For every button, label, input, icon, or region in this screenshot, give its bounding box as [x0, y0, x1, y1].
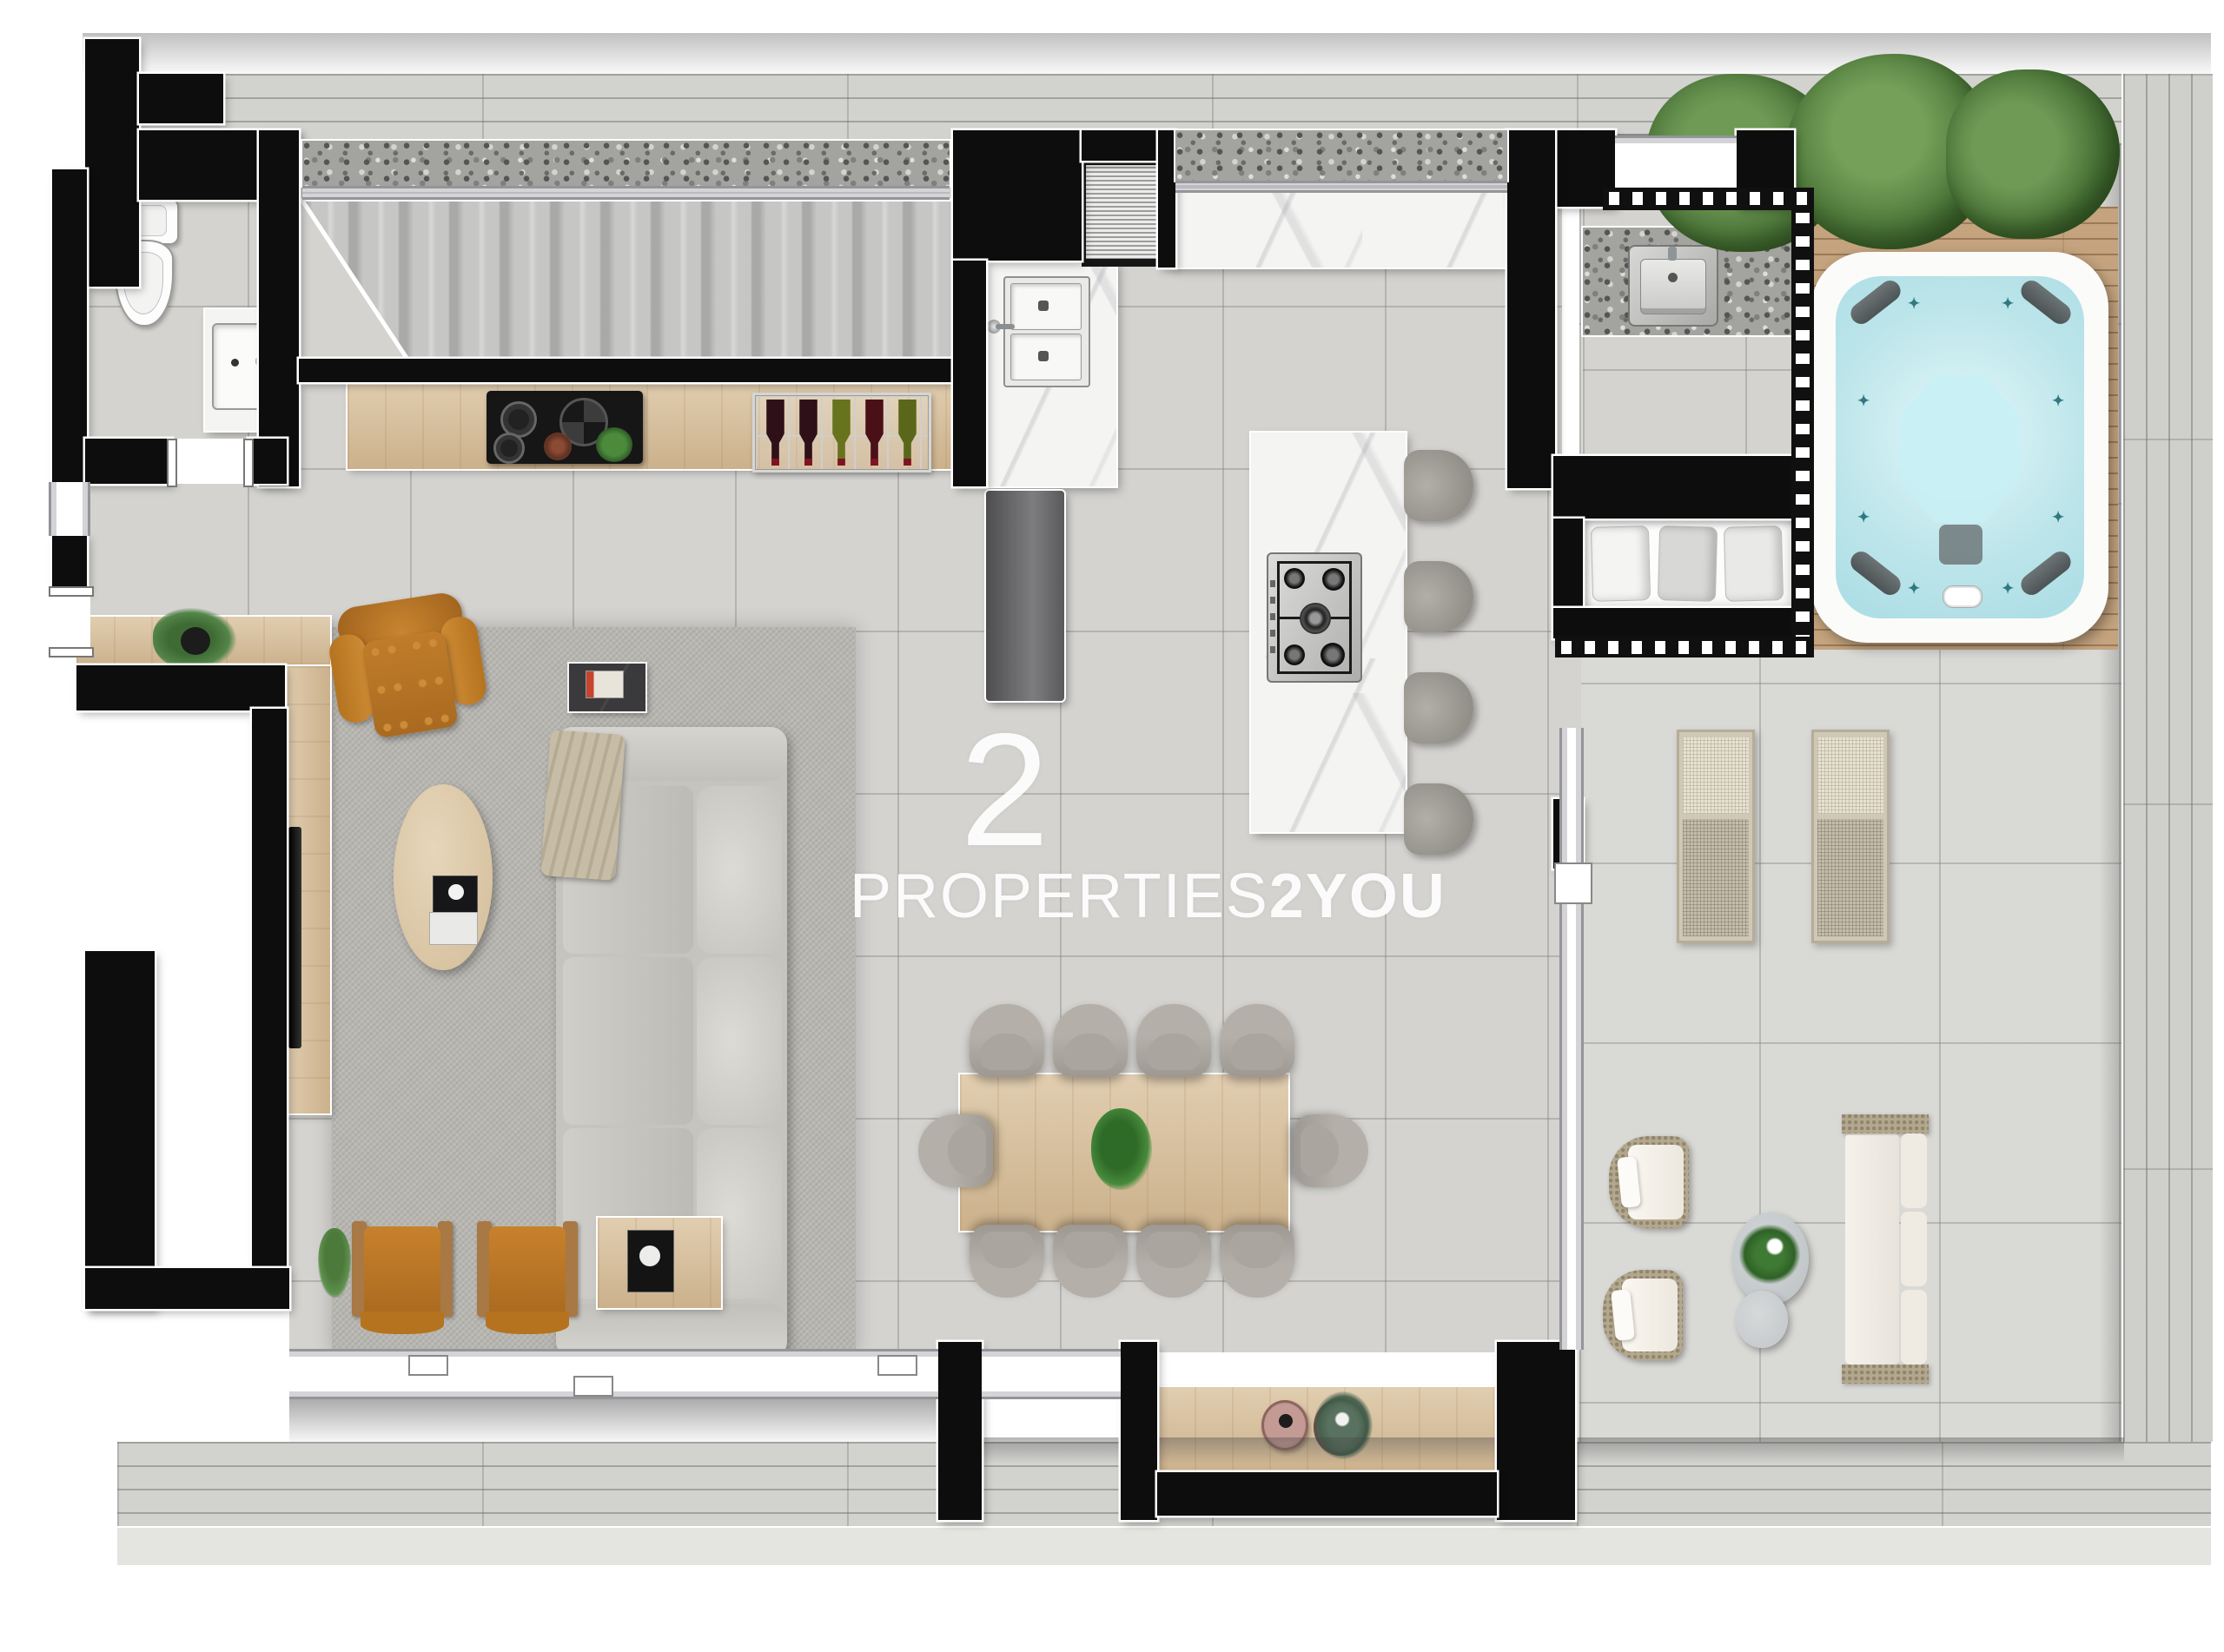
dining-chair-end	[918, 1114, 993, 1187]
hot-tub-control-panel	[1943, 585, 1982, 608]
door-mullion	[408, 1355, 448, 1376]
door-shadow	[289, 1399, 947, 1442]
watermark-brand-bold: 2YOU	[1269, 862, 1446, 931]
island-stools	[1404, 450, 1475, 895]
bottle-cap	[903, 459, 911, 466]
book-dot	[448, 884, 464, 900]
side-table-wood-book-dot	[639, 1246, 660, 1266]
burner-small	[493, 433, 525, 464]
wall	[953, 261, 986, 486]
wine-bottle	[830, 400, 853, 466]
island-gas-cooktop	[1267, 552, 1362, 683]
kitchen-faucet-spout	[996, 324, 1015, 329]
bottle-cap	[771, 459, 779, 466]
pergola-border	[1791, 207, 1814, 653]
wall	[938, 1342, 982, 1520]
wall	[299, 359, 953, 382]
vanity-basin	[212, 323, 264, 410]
tv-screen	[288, 827, 301, 1048]
cooktop-knobs	[1270, 580, 1275, 653]
jet-icon: ✦	[2052, 393, 2064, 410]
leather-armchair	[323, 589, 493, 748]
pergola-border	[1555, 637, 1814, 657]
glass-shaft	[1082, 161, 1167, 267]
counter-burner-tray	[486, 391, 643, 464]
jet-icon: ✦	[1908, 295, 1920, 313]
side-table-book	[586, 671, 624, 698]
jet-icon: ✦	[2052, 509, 2064, 526]
towel	[1591, 525, 1651, 602]
stair-cut-line	[299, 198, 408, 360]
outdoor-armchair	[1609, 1136, 1689, 1228]
wall	[52, 169, 87, 482]
burner-center	[1300, 603, 1331, 634]
wall	[248, 439, 287, 484]
kitchen-window-sill	[1175, 130, 1507, 181]
towels	[1592, 526, 1783, 599]
stairs-window-sill	[302, 141, 950, 186]
dining-chair	[1136, 1225, 1211, 1298]
kitchen-double-sink	[1003, 276, 1090, 387]
dining-chair	[1136, 1004, 1211, 1077]
wall	[85, 951, 155, 1309]
decor-plate	[544, 433, 572, 460]
burner	[1320, 643, 1345, 667]
door-mullion	[877, 1355, 917, 1376]
bar-stool	[1404, 561, 1473, 632]
powder-door-opening	[172, 439, 248, 484]
wall	[1121, 1342, 1157, 1520]
jet-icon: ✦	[2002, 580, 2014, 598]
throw-blanket	[540, 730, 625, 881]
dining-chair-end	[1294, 1114, 1368, 1187]
jet-icon: ✦	[1857, 393, 1870, 410]
wall	[1507, 130, 1555, 488]
outdoor-armchair	[1603, 1270, 1683, 1360]
dining-chairs-bottom	[970, 1225, 1300, 1299]
wall	[1158, 130, 1175, 268]
floor-plan-canvas: ✦ ✦ ✦ ✦ ✦ ✦ ✦ ✦	[0, 0, 2224, 1652]
wall	[259, 130, 299, 486]
sliding-doors-right	[1559, 728, 1584, 1350]
jet-icon: ✦	[1857, 509, 1870, 526]
sliding-doors-bottom	[289, 1349, 938, 1399]
bottle-cap	[870, 459, 878, 466]
wall	[1497, 1342, 1575, 1520]
bottle-cap	[837, 459, 845, 466]
sling-chair	[352, 1221, 453, 1336]
burner	[1284, 644, 1305, 665]
wine-rack	[752, 393, 931, 472]
wine-bottle	[764, 400, 787, 466]
wall	[85, 439, 172, 484]
sun-lounger	[1811, 730, 1890, 943]
dining-chair	[1220, 1225, 1294, 1298]
wall	[85, 39, 139, 287]
kitchen-counter-top	[1171, 193, 1507, 268]
sling-chair	[477, 1221, 578, 1336]
watermark-text: PROPERTIES2YOU	[850, 865, 1446, 928]
wall	[1082, 130, 1160, 161]
wall	[252, 709, 287, 1274]
exterior-notch	[155, 951, 252, 1272]
balcony-paving-lower	[117, 1526, 2211, 1565]
exterior-notch	[76, 1309, 289, 1442]
wall	[52, 534, 87, 591]
wall	[76, 665, 285, 710]
jet-icon: ✦	[2002, 295, 2014, 313]
bar-stool	[1404, 450, 1473, 521]
coffee-table-book2	[429, 912, 478, 945]
terrace-paving-right	[2121, 74, 2213, 1442]
bar-stool	[1404, 783, 1473, 855]
wall	[1157, 1472, 1497, 1516]
exterior-notch	[76, 710, 252, 951]
watermark-logo: 2	[960, 710, 1049, 871]
sliding-doors-bottom2	[982, 1349, 1121, 1399]
burner	[1284, 568, 1305, 589]
wine-bottle	[896, 400, 919, 466]
stairs-window-frame	[302, 186, 950, 200]
bbq-sink	[1628, 245, 1718, 327]
dining-plant	[1091, 1108, 1152, 1190]
burner	[1322, 568, 1345, 591]
entry-door-opening	[49, 591, 90, 652]
watermark-brand-regular: PROPERTIES	[850, 862, 1269, 931]
wall	[1553, 608, 1793, 638]
tray-plant	[596, 427, 632, 462]
bar-stool	[1404, 672, 1473, 743]
dining-chair	[1220, 1004, 1294, 1077]
wine-bottle	[797, 400, 820, 466]
wall	[139, 74, 223, 123]
hot-tub-center-pad	[1899, 375, 2021, 523]
refrigerator	[986, 491, 1064, 701]
towel-niche	[1583, 519, 1791, 608]
outdoor-table-flowers	[1764, 1237, 1786, 1256]
dining-chair	[1053, 1004, 1128, 1077]
wall	[85, 1268, 289, 1309]
dining-chair	[1053, 1225, 1128, 1298]
wall	[1553, 456, 1793, 519]
monstera-pot	[181, 627, 210, 655]
door-jamb	[1554, 862, 1592, 904]
towel	[1724, 525, 1784, 602]
hot-tub-seat	[1939, 525, 1982, 565]
kitchen-window-frame	[1175, 181, 1507, 193]
niche-bowl-hole	[1279, 1414, 1293, 1428]
dining-chair	[970, 1225, 1044, 1298]
small-plant	[318, 1228, 351, 1298]
dining-chairs-top	[970, 1004, 1300, 1079]
vanity-drain	[231, 359, 239, 367]
outdoor-sofa	[1842, 1114, 1929, 1384]
bottle-cap	[804, 459, 812, 466]
jet-icon: ✦	[1908, 580, 1920, 598]
dining-chair	[970, 1004, 1044, 1077]
outdoor-table-small	[1736, 1291, 1788, 1348]
towel	[1658, 525, 1718, 602]
left-window	[49, 482, 90, 536]
wine-bottle	[863, 400, 886, 466]
wall	[953, 130, 1082, 261]
pergola-border	[1603, 188, 1814, 210]
door-mullion	[573, 1376, 613, 1397]
niche-plant-flowers	[1333, 1411, 1352, 1428]
sun-lounger	[1677, 730, 1755, 943]
